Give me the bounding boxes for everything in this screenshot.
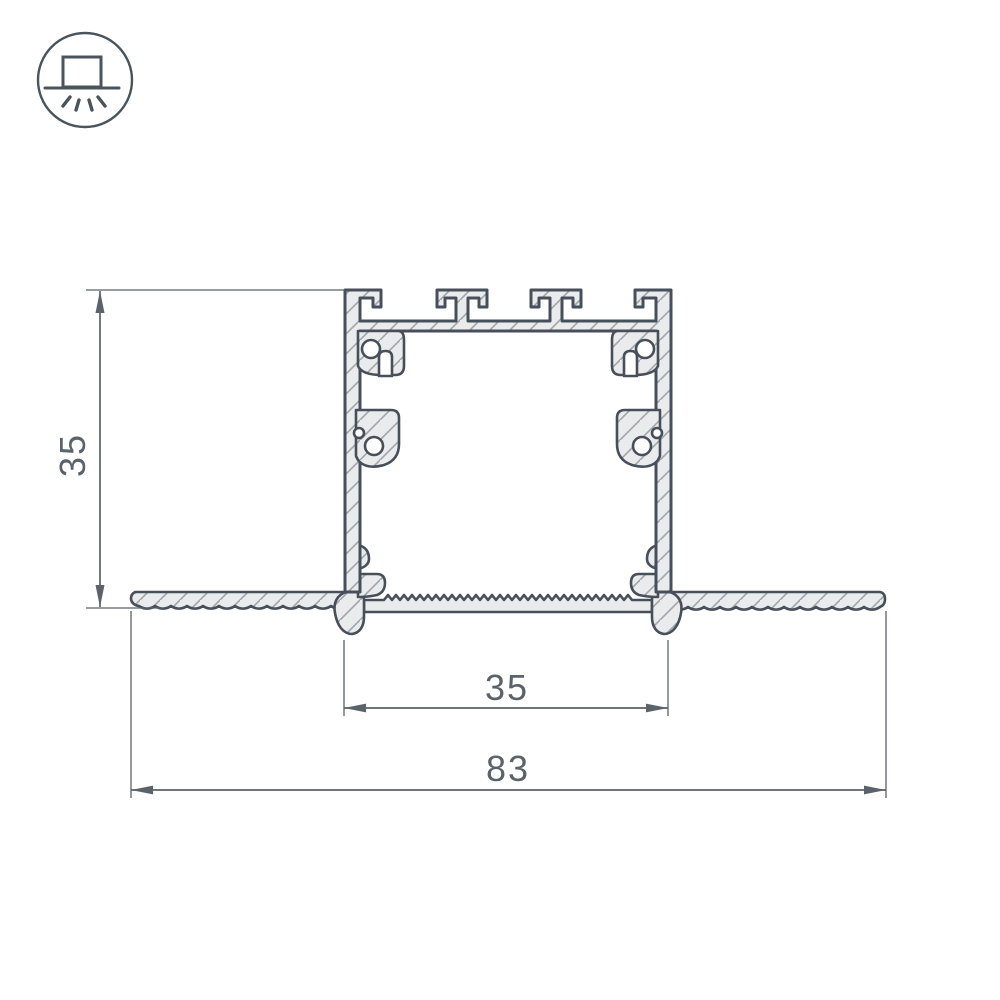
left-foot xyxy=(334,592,364,634)
clip-notch-left xyxy=(354,428,364,438)
dimension-inner-width-label: 35 xyxy=(485,667,529,708)
arrowhead-right xyxy=(646,704,668,713)
left-flange xyxy=(131,592,347,609)
recessed-downlight-icon xyxy=(38,33,132,127)
screw-hole-left xyxy=(362,340,380,358)
arrowhead-up xyxy=(96,291,105,313)
left-shoulder xyxy=(358,574,385,597)
dimension-inner-width: 35 xyxy=(344,640,668,716)
dimension-height-label: 35 xyxy=(52,433,93,477)
arrowhead-left xyxy=(344,704,366,713)
right-foot xyxy=(652,592,682,634)
arrowhead-left xyxy=(131,786,153,795)
fixture-box xyxy=(63,57,101,87)
drawing-page: 35 35 83 xyxy=(0,0,1000,1000)
right-shoulder xyxy=(631,574,658,597)
screw-slot-right xyxy=(624,351,637,376)
channel-floor xyxy=(364,595,652,612)
dimension-overall-width-label: 83 xyxy=(486,748,530,789)
screw-slot-left xyxy=(379,351,392,376)
drawing-canvas: 35 35 83 xyxy=(0,0,1000,1000)
profile-cross-section xyxy=(131,290,885,634)
arrowhead-down xyxy=(96,585,105,607)
clip-notch-right xyxy=(652,428,662,438)
right-flange xyxy=(669,592,885,610)
dimension-height: 35 xyxy=(52,290,345,608)
light-rays-icon xyxy=(63,97,105,110)
icon-circle xyxy=(38,33,132,127)
screw-hole-right xyxy=(636,340,654,358)
clip-hole-right xyxy=(633,437,651,455)
arrowhead-right xyxy=(864,786,886,795)
clip-hole-left xyxy=(365,437,383,455)
